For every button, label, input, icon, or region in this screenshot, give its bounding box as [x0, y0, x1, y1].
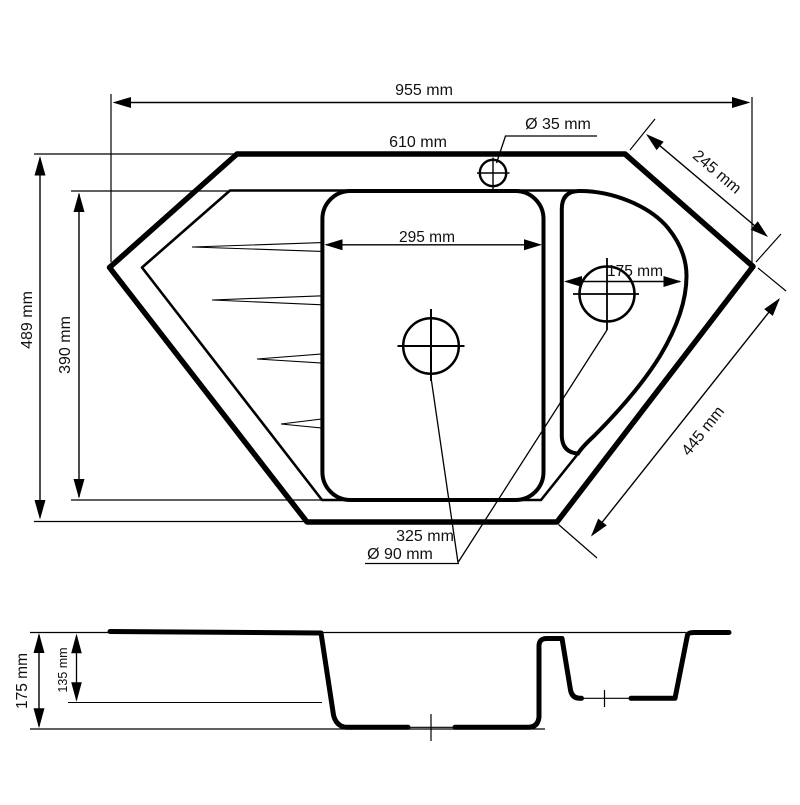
svg-text:Ø 90 mm: Ø 90 mm: [367, 546, 433, 563]
svg-text:325 mm: 325 mm: [396, 528, 454, 545]
svg-text:610 mm: 610 mm: [389, 134, 447, 151]
svg-text:295 mm: 295 mm: [399, 229, 455, 246]
svg-text:175 mm: 175 mm: [14, 653, 31, 709]
svg-text:175 mm: 175 mm: [607, 263, 663, 280]
svg-text:135 mm: 135 mm: [56, 647, 70, 692]
svg-text:489 mm: 489 mm: [19, 291, 36, 349]
svg-text:955 mm: 955 mm: [395, 82, 453, 99]
svg-text:390 mm: 390 mm: [57, 316, 74, 374]
svg-text:Ø 35 mm: Ø 35 mm: [525, 116, 591, 133]
